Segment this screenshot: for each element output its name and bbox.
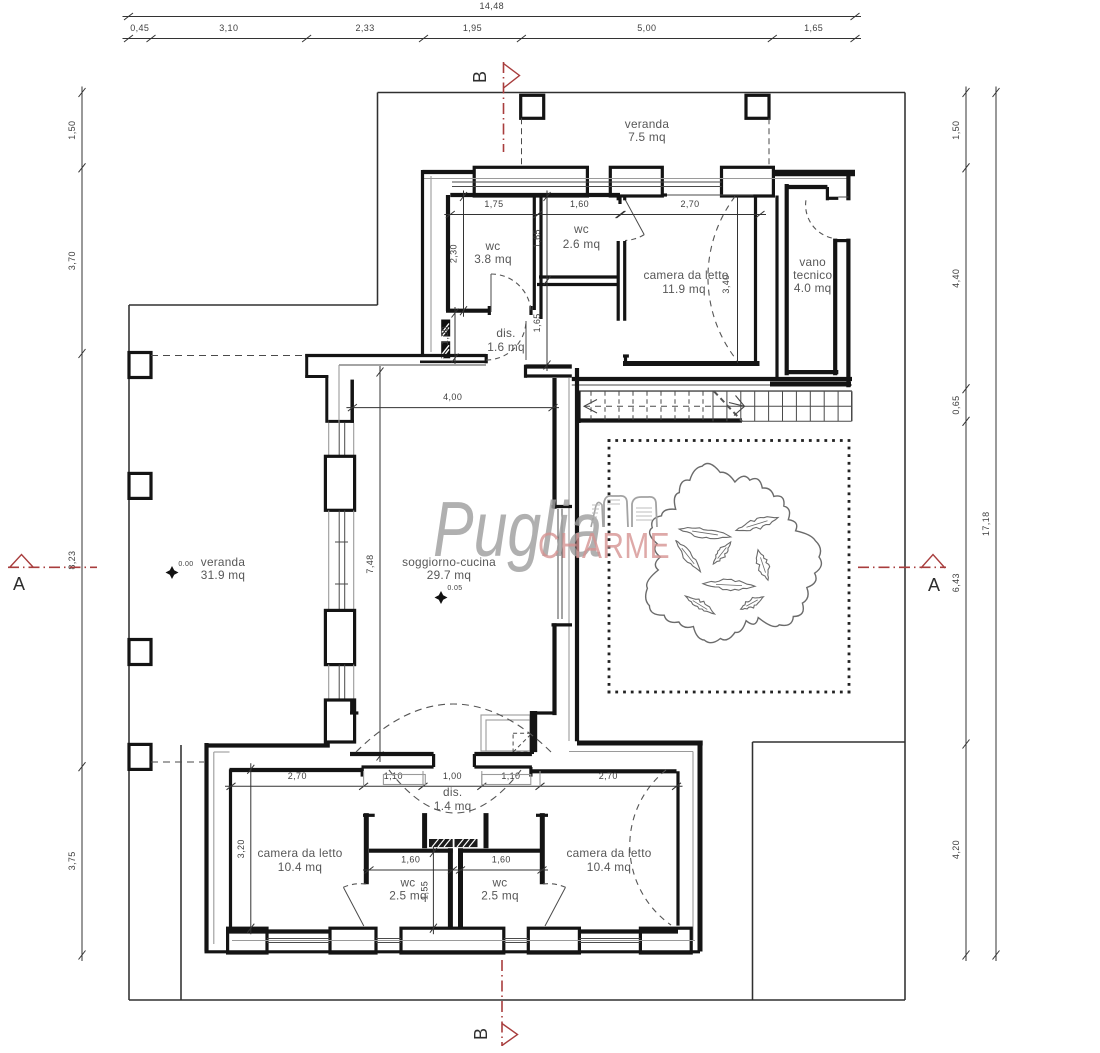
svg-text:CHARME: CHARME (538, 526, 670, 566)
svg-text:4,00: 4,00 (443, 392, 462, 402)
svg-text:5,00: 5,00 (637, 23, 656, 33)
svg-text:1,65: 1,65 (804, 23, 823, 33)
svg-text:4.0 mq: 4.0 mq (794, 281, 832, 295)
svg-text:2.5 mq: 2.5 mq (389, 889, 427, 903)
svg-text:camera da letto: camera da letto (566, 846, 651, 860)
svg-text:3,10: 3,10 (219, 23, 238, 33)
svg-text:2,70: 2,70 (599, 771, 618, 781)
svg-text:1.4 mq: 1.4 mq (434, 799, 472, 813)
svg-text:3,20: 3,20 (236, 839, 246, 858)
svg-text:A: A (928, 575, 940, 595)
svg-text:vano: vano (799, 255, 826, 269)
svg-text:wc: wc (573, 222, 589, 236)
svg-text:1,50: 1,50 (951, 121, 961, 140)
svg-text:wc: wc (400, 876, 416, 890)
svg-text:wc: wc (492, 876, 508, 890)
svg-text:3,75: 3,75 (67, 851, 77, 870)
svg-text:1,60: 1,60 (492, 855, 511, 865)
svg-text:2.6 mq: 2.6 mq (563, 237, 601, 251)
svg-text:dis.: dis. (443, 785, 462, 799)
svg-text:camera da letto: camera da letto (643, 268, 728, 282)
svg-text:10.4 mq: 10.4 mq (278, 860, 322, 874)
svg-text:1,10: 1,10 (501, 771, 520, 781)
svg-text:3.8 mq: 3.8 mq (474, 252, 512, 266)
svg-text:1,60: 1,60 (570, 199, 589, 209)
svg-text:A: A (13, 574, 25, 594)
svg-text:1,50: 1,50 (67, 121, 77, 140)
svg-text:7,48: 7,48 (365, 554, 375, 573)
svg-text:10.4 mq: 10.4 mq (587, 860, 631, 874)
svg-text:2,70: 2,70 (680, 199, 699, 209)
svg-text:6,43: 6,43 (951, 573, 961, 592)
svg-text:4,20: 4,20 (951, 840, 961, 859)
svg-text:17,18: 17,18 (981, 511, 991, 536)
svg-text:14,48: 14,48 (479, 1, 504, 11)
svg-text:B: B (471, 1028, 491, 1040)
svg-text:31.9 mq: 31.9 mq (201, 568, 245, 582)
svg-text:1,65: 1,65 (532, 313, 542, 332)
svg-text:7.5 mq: 7.5 mq (628, 130, 666, 144)
svg-text:0,45: 0,45 (130, 23, 149, 33)
svg-text:camera da letto: camera da letto (257, 846, 342, 860)
svg-text:11.9 mq: 11.9 mq (662, 282, 706, 296)
svg-text:1,10: 1,10 (384, 771, 403, 781)
svg-text:0.05: 0.05 (447, 585, 462, 592)
svg-text:1,00: 1,00 (440, 326, 450, 345)
svg-text:2,30: 2,30 (449, 244, 459, 263)
svg-text:1,00: 1,00 (443, 771, 462, 781)
svg-text:veranda: veranda (625, 117, 670, 131)
svg-text:dis.: dis. (496, 326, 515, 340)
svg-text:2,70: 2,70 (288, 771, 307, 781)
svg-text:1,65: 1,65 (532, 229, 542, 248)
svg-text:tecnico: tecnico (793, 268, 832, 282)
svg-text:1,75: 1,75 (484, 199, 503, 209)
svg-text:0,65: 0,65 (951, 395, 961, 414)
svg-text:1,95: 1,95 (463, 23, 482, 33)
svg-text:1.6 mq: 1.6 mq (487, 340, 525, 354)
svg-text:2,33: 2,33 (355, 23, 374, 33)
svg-text:B: B (470, 71, 490, 83)
svg-text:0.00: 0.00 (178, 561, 193, 568)
svg-text:1,60: 1,60 (401, 855, 420, 865)
svg-text:2.5 mq: 2.5 mq (481, 889, 519, 903)
svg-text:4,40: 4,40 (951, 269, 961, 288)
svg-text:veranda: veranda (201, 555, 246, 569)
svg-text:wc: wc (485, 239, 501, 253)
svg-text:3,70: 3,70 (67, 251, 77, 270)
